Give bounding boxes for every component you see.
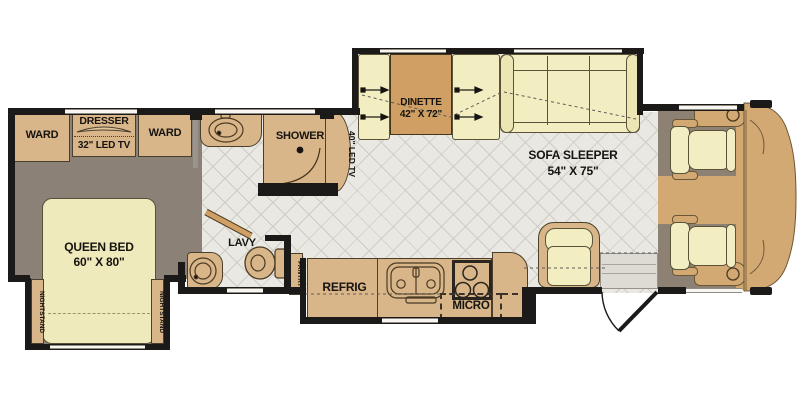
lavy-sink-icon — [190, 258, 216, 284]
lavy-label: LAVY — [218, 238, 266, 250]
window — [227, 288, 263, 293]
window — [65, 109, 137, 114]
cab-bottom-wall — [658, 287, 686, 294]
lavy-top-stub — [265, 235, 291, 241]
tv-cabinet-block — [320, 184, 334, 194]
nightstand-left-label: NIGHTSTAND — [32, 281, 44, 343]
tv40-label: 40" LED TV — [341, 114, 356, 194]
fixtures-overlay — [0, 0, 800, 400]
window — [50, 345, 145, 349]
lavy-left-wall — [178, 262, 185, 293]
shower-door-icon — [280, 147, 320, 184]
window — [215, 109, 315, 114]
window — [514, 49, 622, 53]
dinette-size-label: 42" X 72" — [391, 110, 451, 121]
dresser-curve — [77, 127, 131, 132]
front-bumper — [750, 287, 772, 295]
toilet-icon — [245, 247, 286, 279]
vanity-sink-icon — [209, 114, 243, 142]
pantry-label: PANTRY — [290, 255, 302, 293]
window — [686, 288, 742, 293]
window — [382, 318, 438, 323]
dinette-label: DINETTE — [391, 98, 451, 109]
bedroom-door — [206, 212, 251, 236]
ward-left-label: WARD — [14, 130, 70, 142]
refrig-label: REFRIG — [307, 281, 382, 294]
kitchen-sink-icon — [387, 263, 444, 303]
nightstand-right-label: NIGHTSTAND — [152, 281, 164, 343]
slideout-left-wall — [352, 48, 358, 115]
front-cap — [744, 103, 796, 291]
shower-label: SHOWER — [263, 131, 337, 143]
chair-bottom-wall — [530, 287, 602, 294]
queen-bed-label: QUEEN BED — [47, 241, 151, 254]
slideout-dash-lines — [305, 92, 658, 294]
bed-slide-left-wall — [25, 278, 31, 350]
ward-right-label: WARD — [138, 128, 192, 140]
rv-floorplan: WARD DRESSER 32" LED TV WARD QUEEN BED 6… — [0, 0, 800, 400]
bedroom-bath-wall-stub — [190, 110, 202, 120]
front-bumper — [750, 100, 772, 108]
dresser-label: DRESSER — [72, 116, 136, 127]
window — [679, 105, 737, 110]
cooktop-burners-icon — [456, 266, 489, 298]
tv-cabinet-block — [320, 110, 334, 119]
tv32-label: 32" LED TV — [72, 141, 136, 152]
window — [380, 49, 446, 53]
queen-bed-size-label: 60" X 80" — [47, 256, 151, 269]
cupholder-icon — [727, 109, 739, 280]
entry-door — [602, 292, 657, 331]
micro-label: MICRO — [440, 300, 502, 312]
sofa-label: SOFA SLEEPER — [513, 149, 633, 162]
sofa-size-label: 54" X 75" — [513, 165, 633, 178]
